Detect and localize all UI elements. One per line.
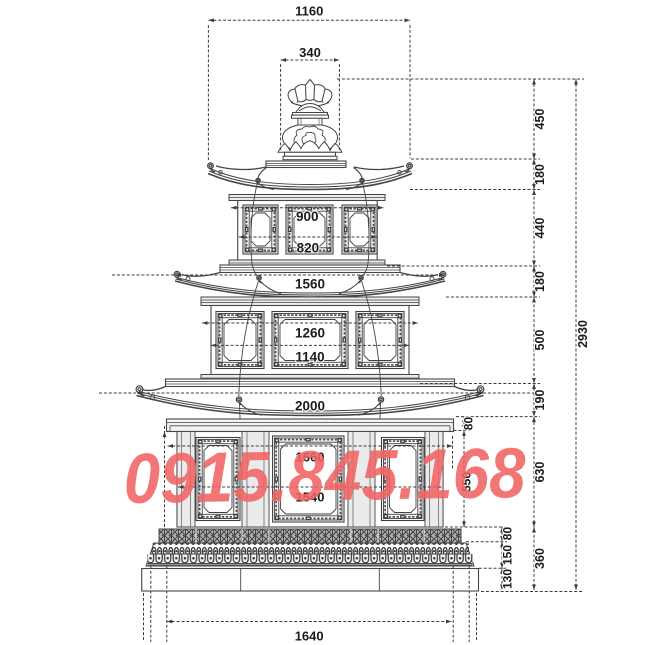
- svg-text:820: 820: [297, 241, 320, 256]
- svg-text:80: 80: [501, 527, 515, 541]
- svg-text:0915.845.168: 0915.845.168: [123, 434, 527, 519]
- svg-text:1140: 1140: [295, 350, 324, 365]
- svg-text:150: 150: [501, 545, 515, 565]
- svg-text:2930: 2930: [576, 320, 590, 348]
- svg-text:130: 130: [501, 569, 515, 589]
- svg-text:340: 340: [299, 45, 321, 60]
- svg-text:2000: 2000: [295, 399, 325, 414]
- svg-text:900: 900: [296, 209, 319, 224]
- svg-text:80: 80: [462, 417, 476, 431]
- svg-text:440: 440: [533, 218, 547, 239]
- svg-text:180: 180: [533, 164, 547, 185]
- svg-text:500: 500: [533, 330, 547, 351]
- svg-text:190: 190: [533, 390, 547, 411]
- svg-text:1560: 1560: [295, 277, 325, 292]
- svg-text:1160: 1160: [295, 4, 323, 19]
- svg-text:1640: 1640: [295, 629, 324, 644]
- svg-text:180: 180: [533, 271, 547, 292]
- svg-text:360: 360: [533, 548, 547, 569]
- svg-text:450: 450: [533, 109, 547, 130]
- svg-text:630: 630: [533, 462, 547, 483]
- svg-text:1260: 1260: [295, 326, 325, 341]
